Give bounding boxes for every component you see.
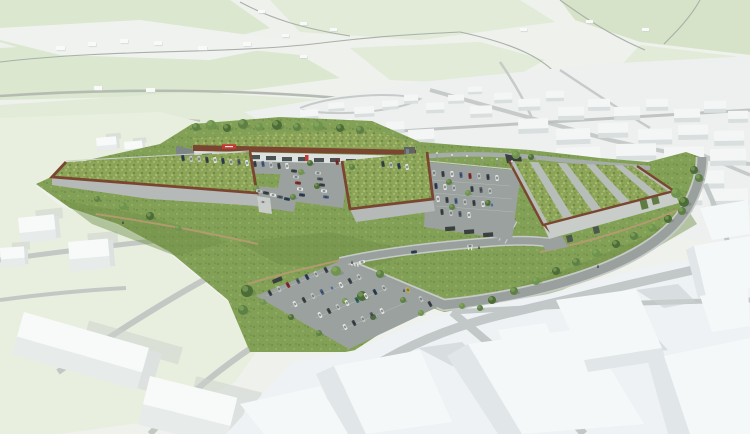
town-building-roof	[614, 107, 640, 116]
store-sign-lettering	[225, 146, 233, 147]
pedestrian-head	[122, 221, 123, 222]
town-building-roof	[328, 102, 344, 109]
tree-highlight	[273, 121, 278, 126]
tree-highlight	[573, 259, 577, 263]
town-building	[354, 106, 375, 118]
tree-highlight	[478, 305, 481, 308]
car-cabin	[473, 202, 475, 205]
car-cabin	[442, 173, 444, 176]
car-cabin	[324, 196, 327, 198]
town-building-roof	[448, 94, 464, 101]
town-building-face	[426, 109, 444, 113]
tree-highlight	[486, 200, 489, 203]
tree-highlight	[533, 278, 537, 282]
town-building-face	[494, 99, 512, 103]
car-cabin	[464, 201, 466, 204]
town-building	[714, 130, 744, 146]
town-building-roof	[728, 111, 748, 119]
render-stage	[0, 0, 750, 434]
town-building-roof	[408, 129, 434, 140]
car-cabin	[296, 182, 299, 184]
town-building-face	[710, 160, 746, 166]
car	[445, 197, 449, 203]
map-building	[243, 42, 251, 46]
red-entrance	[305, 155, 309, 161]
car	[449, 210, 453, 216]
town-building	[614, 107, 640, 121]
pedestrian-head	[351, 261, 352, 262]
tree-highlight	[679, 208, 683, 212]
car-cabin	[298, 188, 301, 190]
car-cabin	[453, 187, 455, 190]
left-hall-ramp	[257, 196, 272, 214]
car-cabin	[322, 190, 325, 192]
tree-highlight	[289, 314, 292, 317]
car-cabin	[487, 176, 489, 179]
town-building-face	[598, 132, 628, 138]
cart-shelter	[445, 226, 455, 231]
map-building	[642, 28, 649, 31]
town-building	[710, 148, 746, 166]
tree-highlight	[207, 121, 212, 126]
tree-highlight	[358, 292, 363, 297]
map-building	[282, 34, 289, 37]
town-building	[678, 124, 708, 140]
map-building	[258, 10, 265, 13]
town-building-roof	[710, 188, 748, 201]
town-building	[674, 109, 700, 123]
map-building	[88, 42, 96, 46]
town-building-roof	[556, 128, 590, 140]
car	[450, 171, 454, 177]
car	[495, 175, 499, 181]
town-building-face	[588, 107, 610, 111]
pedestrian-head	[597, 265, 598, 266]
car-cabin	[469, 245, 472, 247]
town-building-face	[404, 101, 418, 104]
pedestrian	[478, 247, 479, 249]
town-building	[728, 111, 748, 123]
town-building	[704, 101, 726, 113]
town-building-face	[518, 106, 540, 111]
tree-highlight	[256, 124, 260, 128]
car-cabin	[491, 204, 493, 207]
town-building-face	[518, 128, 548, 134]
map-building	[94, 86, 102, 90]
car-cabin	[460, 174, 462, 177]
town-building-face	[674, 118, 700, 123]
pedestrian-head	[403, 289, 404, 290]
map-building	[146, 88, 155, 92]
town-building-roof	[470, 105, 492, 114]
town-building-roof	[518, 118, 548, 129]
pedestrian	[122, 222, 123, 224]
light-pole-lamp	[436, 152, 438, 154]
map-building	[56, 46, 65, 50]
car-cabin	[433, 172, 435, 175]
town-building-roof	[558, 107, 584, 116]
car	[467, 212, 471, 218]
tree-highlight	[176, 225, 179, 228]
car-cabin	[446, 199, 448, 202]
car-cabin	[489, 190, 491, 193]
tree-highlight	[672, 189, 677, 194]
town-building-roof	[704, 101, 726, 109]
tree-highlight	[466, 190, 469, 193]
tree-highlight	[350, 164, 353, 167]
light-pole-lamp	[451, 154, 453, 156]
car-cabin	[450, 212, 452, 215]
map-building	[154, 41, 162, 45]
car-cabin	[437, 198, 439, 201]
car	[470, 186, 474, 192]
town-building-face	[546, 98, 564, 102]
light-pole-lamp	[496, 158, 498, 160]
tree-highlight	[665, 216, 669, 220]
car-cabin	[480, 189, 482, 192]
town-building	[382, 100, 398, 110]
context-building-roof	[124, 140, 143, 149]
tree-highlight	[239, 120, 244, 125]
tree-highlight	[193, 124, 197, 128]
town-building-face	[470, 113, 492, 118]
tree-highlight	[553, 268, 557, 272]
town-building	[328, 102, 345, 112]
tree-highlight	[147, 213, 151, 217]
town-building	[638, 128, 672, 145]
town-building	[404, 95, 418, 104]
car-cabin	[478, 175, 480, 178]
town-building	[448, 94, 464, 104]
car-cabin	[468, 214, 470, 217]
car	[434, 183, 438, 189]
tree-highlight	[261, 299, 264, 302]
tree-highlight	[691, 167, 695, 171]
car-cabin	[482, 203, 484, 206]
context-building-face	[1, 258, 26, 268]
tree-highlight	[649, 225, 653, 229]
town-building-roof	[714, 130, 744, 141]
tree-highlight	[460, 303, 463, 306]
car-cabin	[441, 211, 443, 214]
map-building	[520, 28, 527, 31]
car-cabin	[496, 177, 498, 180]
car	[432, 170, 436, 176]
aerial-architectural-render	[0, 0, 750, 434]
town-building-roof	[546, 91, 564, 98]
context-building-roof	[0, 246, 25, 259]
car	[468, 173, 472, 179]
tree-highlight	[254, 185, 257, 188]
map-building	[120, 39, 128, 43]
town-building	[468, 87, 482, 95]
car-cabin	[451, 173, 453, 176]
town-building	[558, 107, 584, 121]
car	[441, 171, 445, 177]
car-cabin	[292, 170, 295, 172]
pedestrian	[597, 266, 598, 268]
car	[486, 174, 490, 180]
map-building	[300, 55, 307, 58]
context-building-roof	[96, 136, 117, 146]
town-building-roof	[518, 98, 540, 107]
car-cabin	[294, 176, 297, 178]
storefront-window	[314, 158, 324, 162]
car-cabin	[300, 194, 303, 196]
car	[458, 211, 462, 217]
town-building-roof	[300, 109, 318, 117]
cart-shelter	[464, 229, 474, 234]
town-building-roof	[646, 99, 668, 107]
town-building	[494, 92, 512, 103]
tree-highlight	[513, 152, 517, 156]
town-building-roof	[674, 109, 700, 118]
car-cabin	[412, 251, 415, 253]
light-pole-lamp	[511, 160, 513, 162]
town-building-roof	[426, 102, 444, 110]
town-building-roof	[710, 148, 746, 161]
tree-highlight	[315, 183, 318, 186]
map-building	[330, 28, 337, 31]
tree-highlight	[631, 233, 635, 237]
tree-highlight	[95, 196, 98, 199]
tree-highlight	[291, 194, 294, 197]
tree-highlight	[447, 179, 450, 182]
context-building-roof	[68, 239, 109, 260]
town-building-face	[704, 109, 726, 113]
car	[452, 185, 456, 191]
car-cabin	[459, 213, 461, 216]
town-building	[616, 143, 656, 161]
town-building-roof	[598, 122, 628, 133]
cart-shelter	[483, 232, 493, 237]
map-building	[198, 46, 207, 50]
car	[477, 173, 481, 179]
town-building-roof	[404, 95, 418, 101]
car	[443, 184, 447, 190]
town-building-face	[448, 100, 464, 104]
tree-highlight	[419, 310, 422, 313]
car	[467, 244, 473, 248]
tree-highlight	[511, 288, 515, 292]
car-cabin	[435, 185, 437, 188]
town-building-roof	[354, 106, 374, 114]
tree-highlight	[377, 271, 381, 275]
town-building	[546, 91, 564, 102]
light-pole-lamp	[481, 157, 483, 159]
town-building	[518, 118, 549, 134]
tree-highlight	[357, 127, 361, 131]
car	[472, 200, 476, 206]
car	[459, 172, 463, 178]
town-building-face	[614, 116, 640, 121]
town-building-face	[558, 116, 584, 121]
tree-highlight	[314, 122, 319, 127]
car-cabin	[455, 200, 457, 203]
pedestrian-head	[478, 246, 479, 247]
map-building	[586, 20, 593, 23]
town-building-roof	[468, 87, 482, 92]
car-cabin	[471, 188, 473, 191]
car-cabin	[318, 178, 321, 180]
tree-highlight	[224, 125, 228, 129]
car	[440, 209, 444, 215]
map-building	[300, 22, 307, 25]
tree-highlight	[696, 175, 700, 179]
tree-highlight	[239, 306, 244, 311]
light-pole-lamp	[466, 155, 468, 157]
car-cabin	[469, 175, 471, 178]
tree-highlight	[242, 286, 248, 292]
tree-highlight	[613, 241, 617, 245]
tree-highlight	[332, 267, 337, 272]
town-building-face	[714, 140, 744, 146]
town-building-roof	[494, 92, 512, 100]
town-building-roof	[616, 143, 656, 156]
storefront-window	[266, 156, 276, 160]
car	[463, 199, 467, 205]
tree-highlight	[317, 330, 320, 333]
car	[454, 198, 458, 204]
town-building-face	[646, 107, 668, 111]
town-building-face	[678, 134, 708, 140]
town-building-roof	[638, 128, 672, 140]
town-building-face	[728, 119, 748, 123]
town-building-face	[468, 92, 482, 95]
town-building	[556, 128, 591, 145]
town-building-roof	[382, 100, 398, 107]
storefront-window	[282, 157, 292, 161]
tree-highlight	[401, 297, 404, 300]
town-building-roof	[588, 99, 610, 107]
tree-highlight	[593, 250, 597, 254]
town-building	[646, 99, 668, 111]
tree-highlight	[680, 198, 685, 203]
tree-highlight	[294, 124, 298, 128]
car	[436, 196, 440, 202]
tree-highlight	[450, 204, 453, 207]
pedestrian	[403, 290, 404, 292]
tree-highlight	[337, 125, 341, 129]
car	[479, 187, 483, 193]
car-cabin	[444, 186, 446, 189]
car	[490, 202, 494, 208]
pedestrian	[351, 262, 352, 264]
car	[481, 201, 485, 207]
town-building	[470, 105, 492, 118]
town-building-roof	[678, 124, 708, 135]
town-building	[426, 102, 444, 113]
tree-highlight	[308, 160, 311, 163]
tree-highlight	[529, 154, 532, 157]
car-cabin	[320, 184, 323, 186]
town-building	[518, 98, 540, 111]
town-building	[588, 99, 610, 111]
car-cabin	[316, 172, 319, 174]
tree-highlight	[299, 169, 302, 172]
tree-highlight	[120, 203, 124, 207]
town-building	[598, 122, 628, 138]
tree-highlight	[489, 297, 493, 301]
car	[488, 188, 492, 194]
